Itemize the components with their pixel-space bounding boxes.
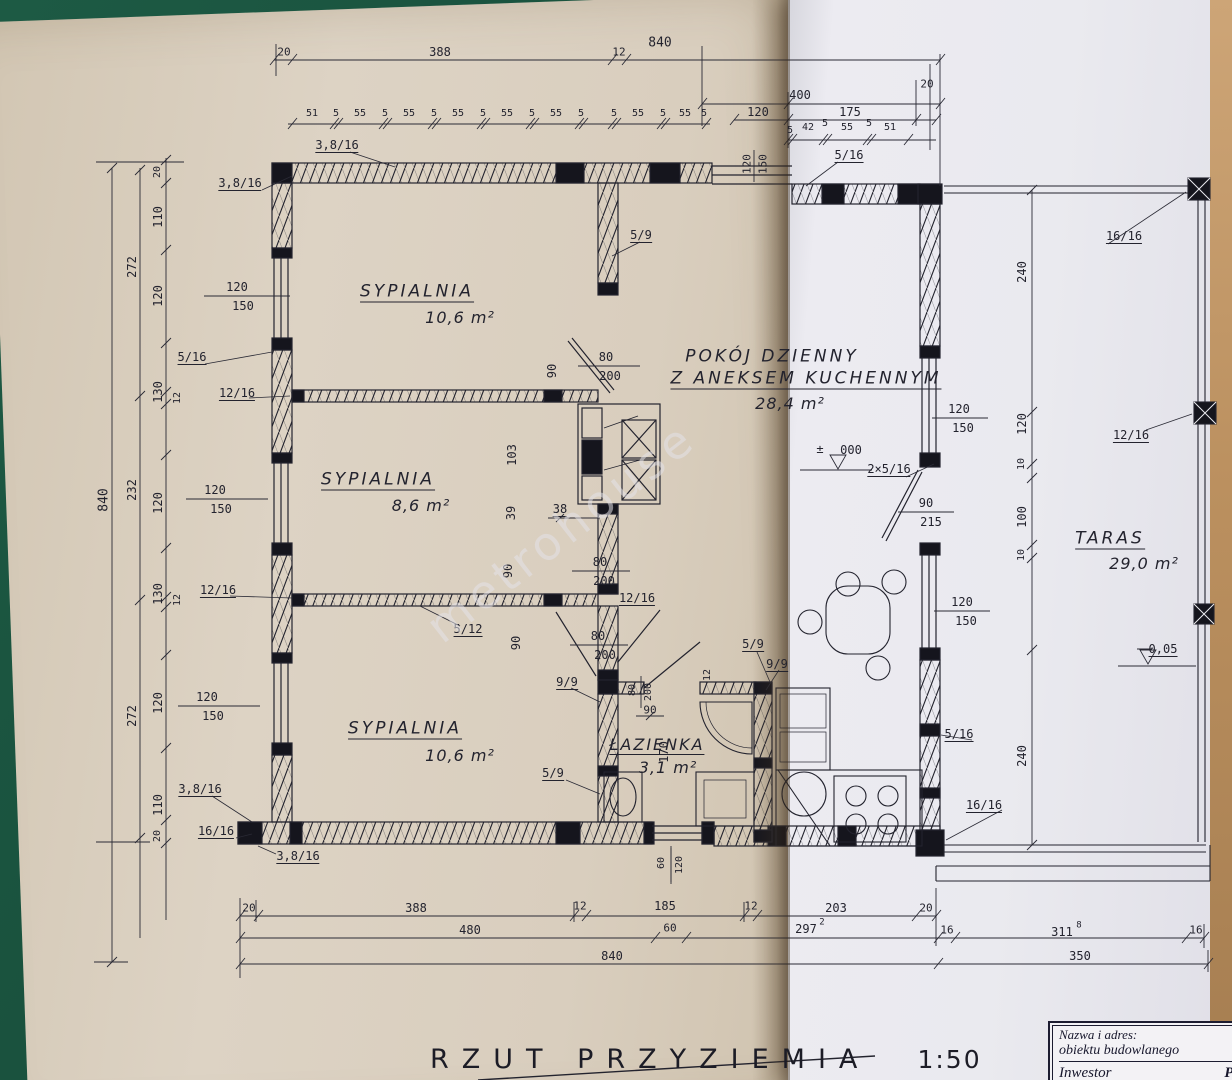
investor-label: Inwestor xyxy=(1059,1065,1112,1080)
dim-label: 3,8/16 xyxy=(315,139,358,153)
dim-label: 120 xyxy=(226,281,248,293)
dim-label: 110 xyxy=(152,794,164,816)
dim-label: 39 xyxy=(505,506,517,520)
dim-label: 5 xyxy=(787,126,793,136)
investor-value: Pa xyxy=(1224,1065,1232,1080)
dim-label: 120 xyxy=(951,596,973,608)
dim-label: 150 xyxy=(210,503,232,515)
dim-label: 5 xyxy=(578,109,584,119)
dim-label: 5 xyxy=(431,109,437,119)
dim-label: 3,8/16 xyxy=(178,783,221,797)
dim-label: 16/16 xyxy=(198,825,234,839)
dim-label: 16/16 xyxy=(1106,230,1142,244)
dim-label: 840 xyxy=(98,488,111,511)
dim-label: 12 xyxy=(744,901,757,912)
room-name-pokoj-dzienny-line2: Z ANEKSEM KUCHENNYM xyxy=(670,371,941,390)
dim-label: ± xyxy=(816,443,823,455)
dim-label: 170 xyxy=(658,741,670,763)
dim-label: 20 xyxy=(920,79,933,90)
dim-label: 60 xyxy=(663,923,676,934)
room-name-sypialnia-3: SYPIALNIA xyxy=(348,721,462,740)
dim-label: 8 xyxy=(1076,922,1081,931)
dim-label: 200 xyxy=(594,649,616,661)
dim-label: 185 xyxy=(654,900,676,912)
dim-label: 100 xyxy=(1016,506,1028,528)
dim-label: 5 xyxy=(529,109,535,119)
dim-label: 103 xyxy=(506,444,518,466)
dim-label: 12/16 xyxy=(200,584,236,598)
dim-label: 16 xyxy=(940,925,953,936)
dim-label: 20 xyxy=(153,166,163,178)
dim-label: 000 xyxy=(840,444,862,456)
dim-label: 0,05 xyxy=(1149,643,1178,657)
room-name-sypialnia-1: SYPIALNIA xyxy=(360,284,474,303)
dim-label: 60 xyxy=(657,857,667,869)
dim-label: 120 xyxy=(152,285,164,307)
dim-label: 10 xyxy=(1017,458,1027,470)
dim-label: 150 xyxy=(202,710,224,722)
dim-label: 130 xyxy=(152,381,164,403)
dim-label: 350 xyxy=(1069,950,1091,962)
drawing-title-text: RZUT PRZYZIEMIA xyxy=(430,1044,870,1075)
title-block: Nazwa i adres: obiektu budowlanego Inwes… xyxy=(1048,1021,1232,1080)
dim-label: 80 xyxy=(599,351,613,363)
dim-label: 3,8/16 xyxy=(276,850,319,864)
dim-label: 80 xyxy=(593,556,607,568)
dim-label: 80 xyxy=(591,630,605,642)
dim-label: 5 xyxy=(333,109,339,119)
dim-label: 12 xyxy=(173,392,183,404)
dim-label: 55 xyxy=(452,109,464,119)
room-area-sypialnia-1: 10,6 m² xyxy=(425,310,495,326)
title-block-line2: obiektu budowlanego xyxy=(1059,1043,1232,1062)
dim-label: 120 xyxy=(747,106,769,118)
dim-label: 12 xyxy=(612,47,625,58)
dim-label: 5/9 xyxy=(742,638,764,652)
dim-label: 42 xyxy=(802,123,814,133)
dim-label: 2×5/16 xyxy=(867,463,910,477)
dim-label: 5 xyxy=(822,119,828,129)
dim-label: 12/16 xyxy=(219,387,255,401)
dim-label: 55 xyxy=(632,109,644,119)
dim-label: 150 xyxy=(955,615,977,627)
dim-label: 5 xyxy=(382,109,388,119)
dim-label: 110 xyxy=(152,206,164,228)
dim-label: 5/9 xyxy=(542,767,564,781)
dim-label: 120 xyxy=(1016,413,1028,435)
dim-label: 120 xyxy=(675,856,685,874)
dim-label: 51 xyxy=(306,109,318,119)
dim-label: 55 xyxy=(501,109,513,119)
dim-label: 12/16 xyxy=(619,592,655,606)
plan-labels: 2038812840400120175205155555555555555555… xyxy=(0,0,1232,1080)
dim-label: 20 xyxy=(153,830,163,842)
dim-label: 80 xyxy=(628,684,638,696)
dim-label: 90 xyxy=(643,705,656,716)
dim-label: 9/9 xyxy=(556,676,578,690)
dim-label: 10 xyxy=(1017,549,1027,561)
dim-label: 12/16 xyxy=(1113,429,1149,443)
dim-label: 5/16 xyxy=(835,149,864,163)
dim-label: 16/16 xyxy=(966,799,1002,813)
dim-label: 200 xyxy=(599,370,621,382)
dim-label: 232 xyxy=(126,479,138,501)
dim-label: 90 xyxy=(510,636,522,650)
dim-label: 120 xyxy=(196,691,218,703)
dim-label: 215 xyxy=(920,516,942,528)
dim-label: 5/16 xyxy=(945,728,974,742)
dim-label: 5 xyxy=(611,109,617,119)
drawing-scale: 1:50 xyxy=(917,1045,981,1074)
room-name-pokoj-dzienny: POKÓJ DZIENNY xyxy=(685,349,858,366)
dim-label: 55 xyxy=(550,109,562,119)
dim-label: 20 xyxy=(277,47,290,58)
dim-label: 272 xyxy=(126,256,138,278)
dim-label: 130 xyxy=(152,583,164,605)
room-area-sypialnia-3: 10,6 m² xyxy=(425,748,495,764)
dim-label: 16 xyxy=(1189,925,1202,936)
room-name-taras: TARAS xyxy=(1075,531,1145,550)
dim-label: 51 xyxy=(884,123,896,133)
dim-label: 200 xyxy=(593,575,615,587)
dim-label: 311 xyxy=(1051,926,1073,938)
dim-label: 150 xyxy=(952,422,974,434)
dim-label: 90 xyxy=(546,364,558,378)
room-area-pokoj-dzienny: 28,4 m² xyxy=(755,396,825,412)
dim-label: 5 xyxy=(866,119,872,129)
dim-label: 55 xyxy=(354,109,366,119)
dim-label: 840 xyxy=(601,950,623,962)
dim-label: 5 xyxy=(701,109,707,119)
dim-label: 200 xyxy=(644,683,654,701)
dim-label: 12 xyxy=(703,669,713,681)
dim-label: 120 xyxy=(948,403,970,415)
dim-label: 120 xyxy=(152,692,164,714)
dim-label: 55 xyxy=(841,123,853,133)
dim-label: 175 xyxy=(839,106,861,118)
dim-label: 240 xyxy=(1016,261,1028,283)
room-name-sypialnia-2: SYPIALNIA xyxy=(321,472,435,491)
dim-label: 12 xyxy=(173,594,183,606)
dim-label: 388 xyxy=(429,46,451,58)
dim-label: 20 xyxy=(919,903,932,914)
dim-label: 9/9 xyxy=(766,658,788,672)
room-area-sypialnia-2: 8,6 m² xyxy=(392,498,451,514)
title-block-inner: Nazwa i adres: obiektu budowlanego Inwes… xyxy=(1052,1025,1232,1080)
dim-label: 203 xyxy=(825,902,847,914)
dim-label: 5 xyxy=(480,109,486,119)
dim-label: 120 xyxy=(204,484,226,496)
dim-label: 297 xyxy=(795,923,817,935)
dim-label: 388 xyxy=(405,902,427,914)
dim-label: 5 xyxy=(660,109,666,119)
dim-label: 150 xyxy=(758,154,769,174)
dim-label: 840 xyxy=(648,37,671,50)
photographed-floor-plan: 2038812840400120175205155555555555555555… xyxy=(0,0,1232,1080)
room-area-taras: 29,0 m² xyxy=(1109,556,1179,572)
dim-label: 272 xyxy=(126,705,138,727)
dim-label: 55 xyxy=(403,109,415,119)
dim-label: 20 xyxy=(242,903,255,914)
dim-label: 2 xyxy=(819,919,824,928)
dim-label: 90 xyxy=(919,497,933,509)
dim-label: 5/16 xyxy=(178,351,207,365)
dim-label: 120 xyxy=(742,154,753,174)
title-block-line1: Nazwa i adres: xyxy=(1059,1027,1232,1043)
dim-label: 480 xyxy=(459,924,481,936)
dim-label: 3,8/16 xyxy=(218,177,261,191)
dim-label: 55 xyxy=(679,109,691,119)
dim-label: 12 xyxy=(573,901,586,912)
dim-label: 150 xyxy=(232,300,254,312)
dim-label: 5/9 xyxy=(630,229,652,243)
drawing-title: RZUT PRZYZIEMIA 1:50 xyxy=(430,1044,982,1075)
dim-label: 400 xyxy=(789,89,811,101)
dim-label: 240 xyxy=(1016,745,1028,767)
dim-label: 120 xyxy=(152,492,164,514)
